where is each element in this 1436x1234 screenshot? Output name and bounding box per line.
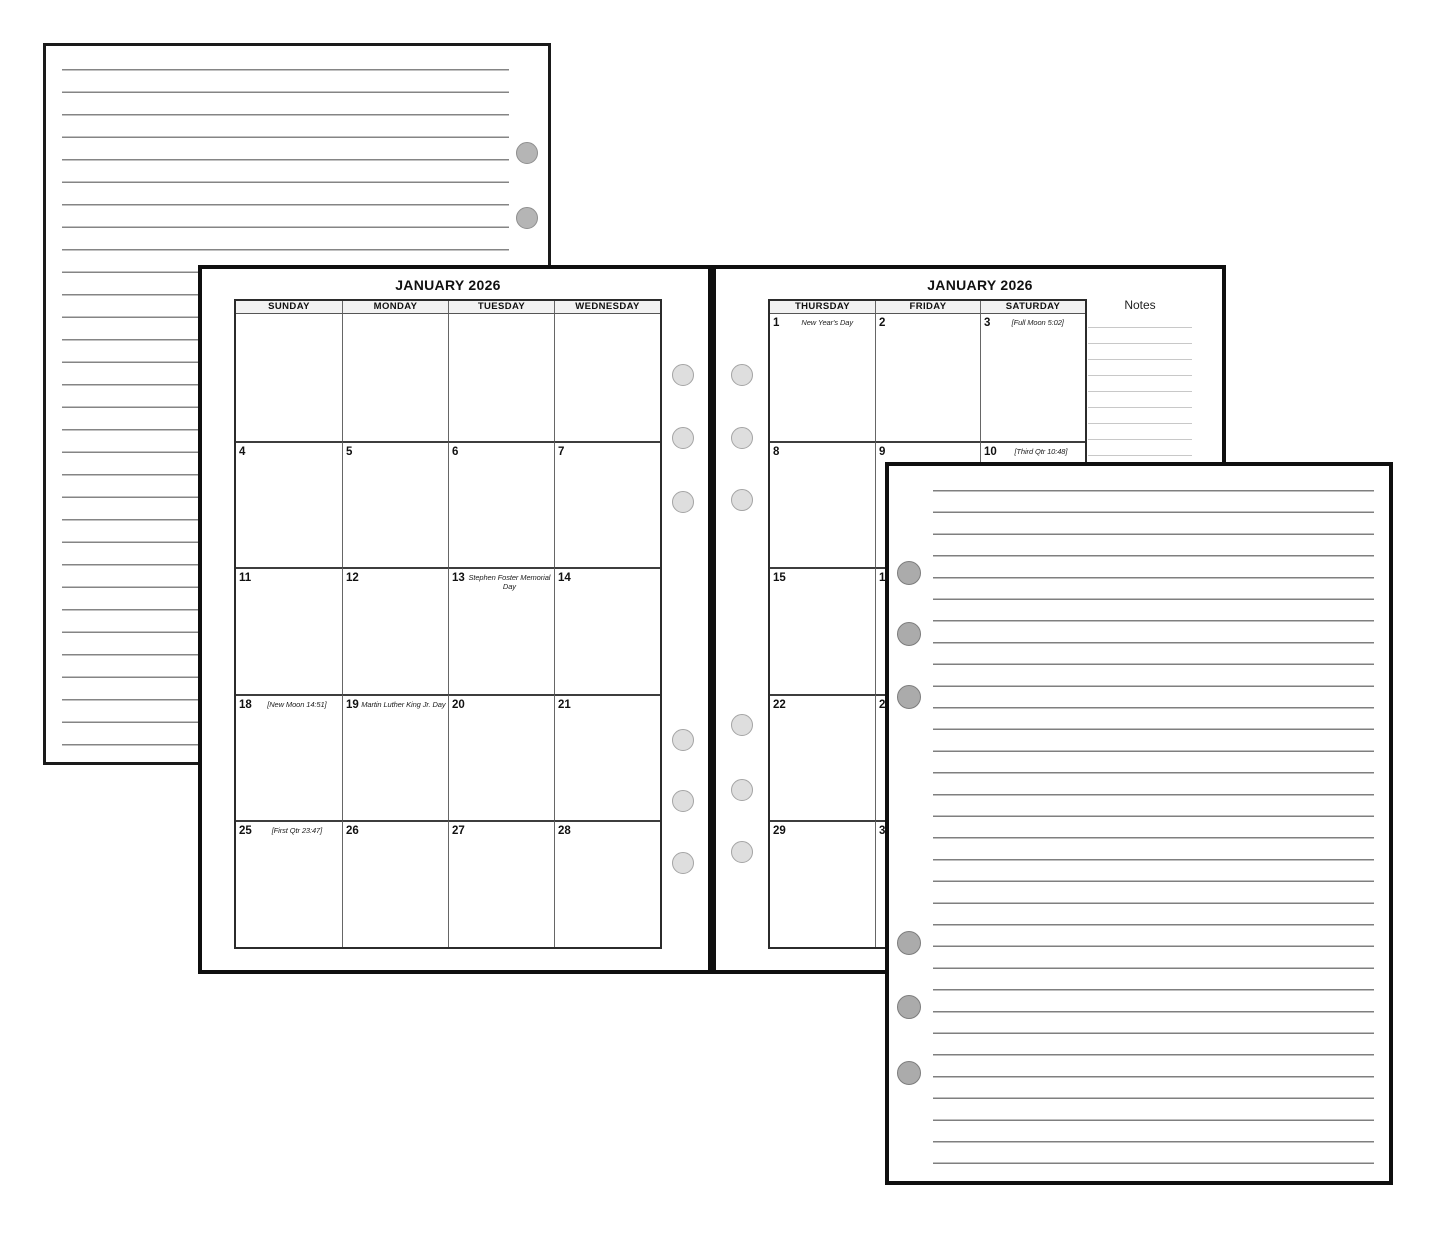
day-cell: 5: [342, 441, 448, 568]
punch-hole: [897, 995, 921, 1019]
punch-hole: [672, 852, 694, 874]
holiday-note: [885, 314, 980, 318]
day-cell: [554, 314, 660, 441]
holiday-note: [885, 443, 980, 447]
holiday-note: Martin Luther King Jr. Day: [359, 696, 448, 709]
day-cell: 22: [770, 694, 875, 821]
date-number: 25: [236, 822, 252, 837]
date-number: 14: [555, 569, 571, 584]
punch-hole: [731, 841, 753, 863]
holiday-note: [452, 314, 554, 318]
day-cell: [448, 314, 554, 441]
date-number: 9: [876, 443, 885, 458]
day-cell: 4: [236, 441, 342, 568]
day-cell: 21: [554, 694, 660, 821]
date-number: 18: [236, 696, 252, 711]
holiday-note: [558, 314, 660, 318]
month-title: JANUARY 2026: [768, 277, 1192, 293]
holiday-note: Stephen Foster Memorial Day: [465, 569, 554, 591]
day-header: MONDAY: [342, 301, 448, 314]
date-number: 12: [343, 569, 359, 584]
day-header: SATURDAY: [980, 301, 1085, 314]
holiday-note: [Third Qtr 10:48]: [997, 443, 1085, 456]
punch-hole: [516, 207, 538, 229]
day-cell: [236, 314, 342, 441]
holiday-note: [251, 569, 342, 573]
day-cell: 14: [554, 567, 660, 694]
holiday-note: [New Moon 14:51]: [252, 696, 342, 709]
date-number: 5: [343, 443, 352, 458]
holiday-note: New Year's Day: [779, 314, 875, 327]
punch-hole: [672, 427, 694, 449]
lined-note-page-bottom-right: [885, 462, 1393, 1185]
holiday-note: [564, 443, 660, 447]
punch-hole: [897, 561, 921, 585]
notes-label: Notes: [1088, 298, 1192, 312]
day-cell: 12: [342, 567, 448, 694]
holiday-note: [465, 822, 554, 826]
holiday-note: [346, 314, 448, 318]
punch-hole: [731, 714, 753, 736]
date-number: 1: [770, 314, 779, 329]
date-number: 28: [555, 822, 571, 837]
day-header: SUNDAY: [236, 301, 342, 314]
date-number: 20: [449, 696, 465, 711]
day-cell: [342, 314, 448, 441]
date-number: 13: [449, 569, 465, 584]
day-header: TUESDAY: [448, 301, 554, 314]
holiday-note: [First Qtr 23:47]: [252, 822, 342, 835]
day-cell: 29: [770, 820, 875, 947]
day-cell: 1New Year's Day: [770, 314, 875, 441]
day-cell: 8: [770, 441, 875, 568]
day-cell: 15: [770, 567, 875, 694]
punch-hole: [897, 1061, 921, 1085]
holiday-note: [571, 696, 660, 700]
punch-hole: [897, 931, 921, 955]
month-grid: SUNDAYMONDAYTUESDAYWEDNESDAY4567111213St…: [234, 299, 662, 949]
punch-hole: [731, 489, 753, 511]
holiday-note: [465, 696, 554, 700]
date-number: 29: [770, 822, 786, 837]
date-number: 22: [770, 696, 786, 711]
day-cell: 25[First Qtr 23:47]: [236, 820, 342, 947]
day-cell: 28: [554, 820, 660, 947]
punch-hole: [672, 491, 694, 513]
holiday-note: [786, 822, 875, 826]
date-number: 7: [555, 443, 564, 458]
punch-hole: [897, 685, 921, 709]
day-cell: 20: [448, 694, 554, 821]
punch-hole: [672, 364, 694, 386]
date-number: 8: [770, 443, 779, 458]
calendar-page-left: JANUARY 2026 SUNDAYMONDAYTUESDAYWEDNESDA…: [198, 265, 712, 974]
day-cell: 11: [236, 567, 342, 694]
month-title: JANUARY 2026: [234, 277, 662, 293]
holiday-note: [571, 569, 660, 573]
date-number: 3: [981, 314, 990, 329]
punch-hole: [731, 427, 753, 449]
holiday-note: [352, 443, 448, 447]
date-number: 6: [449, 443, 458, 458]
day-cell: 7: [554, 441, 660, 568]
punch-hole: [897, 622, 921, 646]
day-cell: 2: [875, 314, 980, 441]
day-cell: 3[Full Moon 5:02]: [980, 314, 1085, 441]
date-number: 10: [981, 443, 997, 458]
date-number: 11: [236, 569, 251, 584]
punch-hole: [516, 142, 538, 164]
date-number: 15: [770, 569, 786, 584]
day-header: THURSDAY: [770, 301, 875, 314]
date-number: 4: [236, 443, 245, 458]
day-cell: 19Martin Luther King Jr. Day: [342, 694, 448, 821]
date-number: 26: [343, 822, 359, 837]
holiday-note: [571, 822, 660, 826]
holiday-note: [359, 822, 448, 826]
holiday-note: [786, 696, 875, 700]
holiday-note: [245, 443, 342, 447]
punch-hole: [672, 729, 694, 751]
punch-hole: [731, 364, 753, 386]
holiday-note: [Full Moon 5:02]: [990, 314, 1085, 327]
date-number: 19: [343, 696, 359, 711]
day-cell: 13Stephen Foster Memorial Day: [448, 567, 554, 694]
notes-ruled-lines: [1088, 312, 1192, 459]
punch-hole: [731, 779, 753, 801]
day-cell: 18[New Moon 14:51]: [236, 694, 342, 821]
holiday-note: [239, 314, 342, 318]
day-header: FRIDAY: [875, 301, 980, 314]
day-cell: 6: [448, 441, 554, 568]
punch-hole: [672, 790, 694, 812]
holiday-note: [779, 443, 875, 447]
day-cell: 26: [342, 820, 448, 947]
ruled-lines: [933, 490, 1374, 1165]
holiday-note: [359, 569, 448, 573]
date-number: 2: [876, 314, 885, 329]
holiday-note: [786, 569, 875, 573]
day-header: WEDNESDAY: [554, 301, 660, 314]
day-cell: 27: [448, 820, 554, 947]
date-number: 27: [449, 822, 465, 837]
date-number: 21: [555, 696, 571, 711]
holiday-note: [458, 443, 554, 447]
